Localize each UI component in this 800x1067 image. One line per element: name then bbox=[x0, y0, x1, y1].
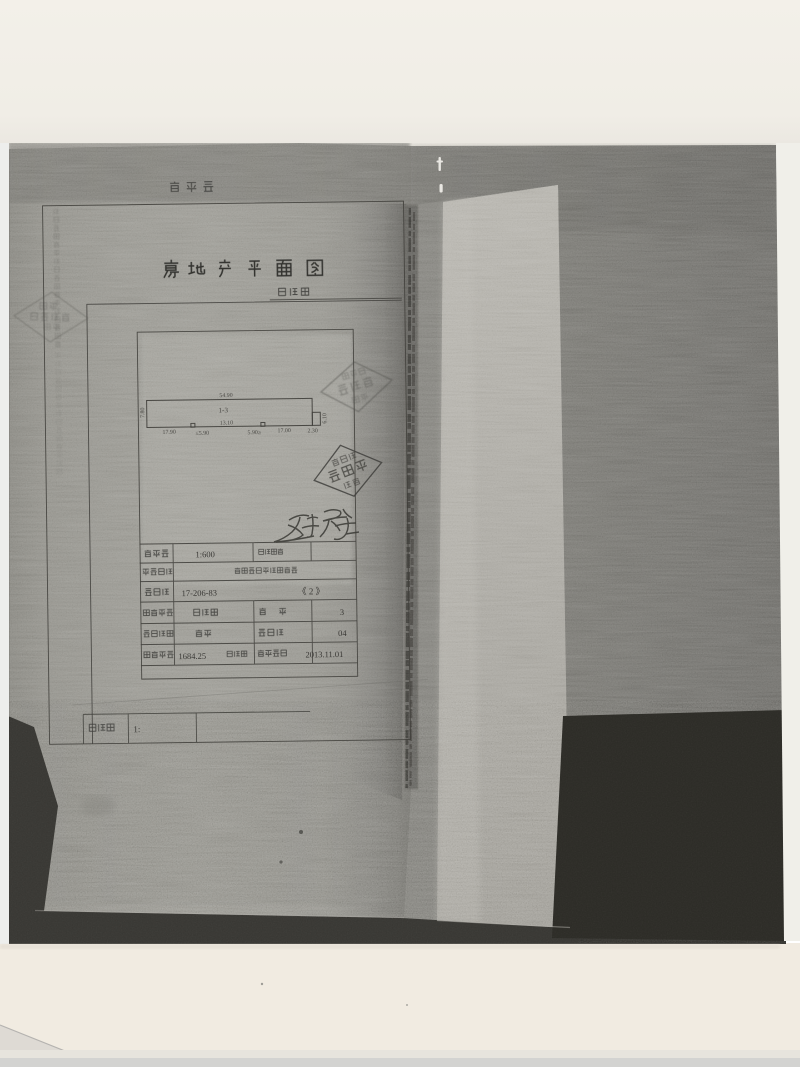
svg-text:≤5.90: ≤5.90 bbox=[195, 431, 209, 437]
svg-text:1:: 1: bbox=[133, 724, 140, 734]
svg-text:2013.11.01: 2013.11.01 bbox=[305, 649, 343, 659]
svg-text:1:600: 1:600 bbox=[195, 549, 215, 559]
svg-text:5.90≥: 5.90≥ bbox=[247, 430, 261, 436]
svg-text:1684.25: 1684.25 bbox=[178, 651, 206, 661]
svg-text:1-3: 1-3 bbox=[218, 406, 228, 414]
svg-text:17.90: 17.90 bbox=[162, 430, 175, 436]
svg-text:2.30: 2.30 bbox=[307, 428, 317, 434]
svg-text:3: 3 bbox=[340, 607, 344, 617]
svg-text:17-206-83: 17-206-83 bbox=[182, 588, 218, 598]
svg-text:17.00: 17.00 bbox=[277, 428, 290, 434]
svg-text:7.80: 7.80 bbox=[140, 408, 146, 419]
svg-text:54.90: 54.90 bbox=[219, 393, 232, 399]
svg-text:《 2 》: 《 2 》 bbox=[298, 586, 325, 596]
svg-text:13.10: 13.10 bbox=[220, 420, 233, 426]
svg-text:04: 04 bbox=[338, 628, 347, 638]
svg-text:6.10: 6.10 bbox=[322, 413, 328, 424]
